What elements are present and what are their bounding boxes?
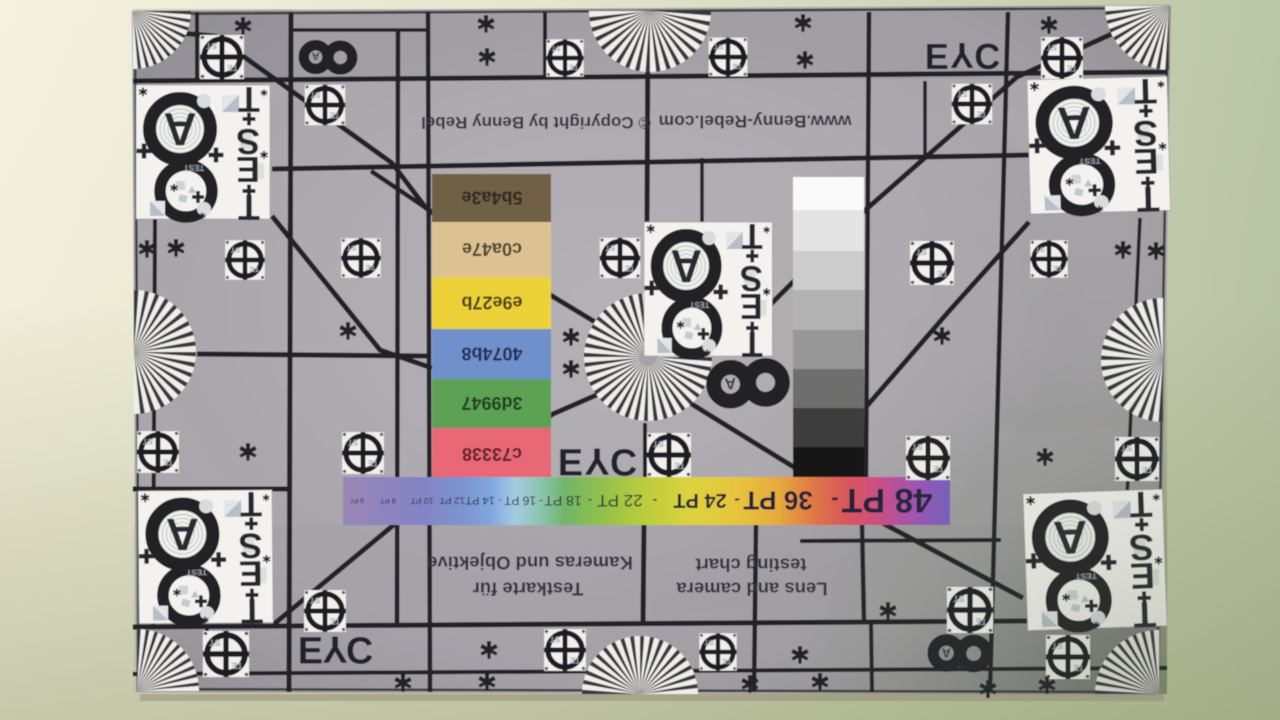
svg-text:16 PT: 16 PT [503,494,536,508]
svg-text:Y: Y [584,439,609,481]
svg-text:© Copyright by Benny Rebel: © Copyright by Benny Rebel [421,113,651,132]
svg-text:12 PT: 12 PT [439,495,465,506]
svg-text:c73338: c73338 [462,444,522,464]
svg-text:6 PT: 6 PT [350,497,364,504]
svg-text:18 PT: 18 PT [544,493,582,509]
svg-text:c0a47e: c0a47e [462,239,522,259]
svg-text:-: - [540,496,543,506]
svg-text:Y: Y [322,627,347,669]
svg-text:E: E [298,631,323,673]
svg-text:Testkarte für: Testkarte für [473,578,584,599]
svg-text:Y: Y [950,35,974,76]
svg-text:8 PT: 8 PT [380,496,396,505]
svg-text:10 PT: 10 PT [411,496,434,506]
svg-text:C: C [346,631,373,673]
svg-text:-: - [498,496,501,505]
svg-text:E: E [925,36,949,77]
svg-text:C: C [974,36,1000,77]
svg-text:-: - [588,494,592,506]
svg-text:22 PT: 22 PT [597,491,642,510]
svg-text:14 PT: 14 PT [465,494,495,506]
svg-text:E: E [558,443,583,485]
svg-text:C: C [610,443,637,485]
svg-text:3d9947: 3d9947 [461,393,522,413]
svg-text:5b4a3e: 5b4a3e [461,188,522,208]
svg-text:4074b8: 4074b8 [461,344,522,364]
svg-text:Kameras und Objektive: Kameras und Objektive [427,552,633,573]
svg-text:e9e27b: e9e27b [461,293,522,313]
svg-text:www.Benny-Rebel.com: www.Benny-Rebel.com [659,112,853,132]
